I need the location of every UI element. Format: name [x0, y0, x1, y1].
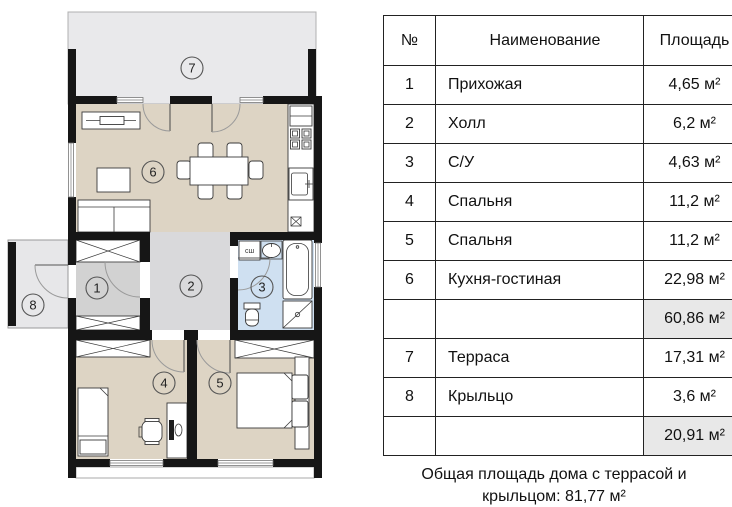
svg-text:4: 4 — [160, 376, 167, 391]
cell-name: Терраса — [436, 339, 644, 378]
cell-name: Кухня-гостиная — [436, 261, 644, 300]
pillow-icon — [292, 401, 308, 427]
caption-line-2: крыльцом: 81,77 м² — [383, 486, 725, 507]
area-table-header: № Наименование Площадь — [384, 16, 732, 66]
table-row: 7Терраса17,31 м² — [384, 339, 732, 378]
chair-icon — [249, 161, 263, 179]
kitchen-sink-icon — [289, 168, 313, 200]
dining-table — [190, 157, 248, 185]
wardrobe-below-entry — [76, 316, 140, 330]
cell-name: С/У — [436, 144, 644, 183]
svg-text:5: 5 — [216, 376, 223, 391]
cell-num: 8 — [384, 378, 436, 417]
cell-area: 11,2 м² — [644, 183, 732, 222]
header-area: Площадь — [644, 16, 732, 66]
pillow-icon — [292, 375, 308, 399]
cell-area: 4,65 м² — [644, 66, 732, 105]
table-row: 5Спальня11,2 м² — [384, 222, 732, 261]
wardrobe-bedroom-5 — [235, 340, 314, 358]
table-row: 3С/У4,63 м² — [384, 144, 732, 183]
svg-text:8: 8 — [29, 298, 36, 313]
cell-area: 60,86 м² — [644, 300, 732, 339]
area-table: № Наименование Площадь 1Прихожая4,65 м²2… — [383, 15, 732, 456]
header-row: № Наименование Площадь — [384, 16, 732, 66]
area-table-section: № Наименование Площадь 1Прихожая4,65 м²2… — [383, 15, 728, 507]
sofa — [78, 200, 150, 232]
header-num: № — [384, 16, 436, 66]
svg-text:2: 2 — [187, 279, 194, 294]
svg-text:1: 1 — [93, 281, 100, 296]
desk — [167, 403, 187, 458]
cell-num — [384, 417, 436, 456]
chair-icon — [177, 161, 191, 179]
cell-num: 3 — [384, 144, 436, 183]
total-area-caption: Общая площадь дома с террасой и крыльцом… — [383, 464, 725, 507]
cell-num: 4 — [384, 183, 436, 222]
cell-area: 6,2 м² — [644, 105, 732, 144]
tv-stand — [82, 112, 140, 129]
cell-num: 7 — [384, 339, 436, 378]
floor-plan: сш — [0, 0, 360, 502]
table-row: 20,91 м² — [384, 417, 732, 456]
cell-area: 3,6 м² — [644, 378, 732, 417]
kitchen-counter — [288, 104, 314, 232]
coffee-table — [97, 168, 130, 192]
room-terrace — [68, 12, 316, 104]
cell-name: Спальня — [436, 222, 644, 261]
cell-area: 11,2 м² — [644, 222, 732, 261]
area-table-body: 1Прихожая4,65 м²2Холл6,2 м²3С/У4,63 м²4С… — [384, 66, 732, 456]
cell-area: 22,98 м² — [644, 261, 732, 300]
toilet-icon — [244, 303, 260, 326]
wardrobe-above-entry — [76, 240, 140, 262]
table-row: 60,86 м² — [384, 300, 732, 339]
cell-name: Холл — [436, 105, 644, 144]
monitor-icon — [169, 420, 174, 440]
cell-name: Спальня — [436, 183, 644, 222]
svg-text:3: 3 — [258, 280, 265, 295]
table-row: 8Крыльцо3,6 м² — [384, 378, 732, 417]
single-bed — [78, 388, 108, 456]
shower-icon — [283, 301, 312, 328]
table-row: 4Спальня11,2 м² — [384, 183, 732, 222]
table-row: 6Кухня-гостиная22,98 м² — [384, 261, 732, 300]
cell-name — [436, 300, 644, 339]
wardrobe-bedroom-4 — [76, 340, 150, 357]
bathtub-icon — [283, 240, 312, 299]
cell-num: 5 — [384, 222, 436, 261]
header-name: Наименование — [436, 16, 644, 66]
cell-area: 20,91 м² — [644, 417, 732, 456]
cell-area: 17,31 м² — [644, 339, 732, 378]
cell-num: 2 — [384, 105, 436, 144]
caption-line-1: Общая площадь дома с террасой и — [383, 464, 725, 486]
svg-text:6: 6 — [149, 165, 156, 180]
foundation-apron — [76, 467, 314, 478]
cell-name: Крыльцо — [436, 378, 644, 417]
svg-text:7: 7 — [188, 61, 195, 76]
cell-num: 6 — [384, 261, 436, 300]
washer-label: сш — [245, 248, 255, 255]
cell-num — [384, 300, 436, 339]
table-row: 1Прихожая4,65 м² — [384, 66, 732, 105]
washing-machine-icon: сш — [239, 241, 260, 260]
cell-name: Прихожая — [436, 66, 644, 105]
cell-area: 4,63 м² — [644, 144, 732, 183]
table-row: 2Холл6,2 м² — [384, 105, 732, 144]
cell-name — [436, 417, 644, 456]
cell-num: 1 — [384, 66, 436, 105]
